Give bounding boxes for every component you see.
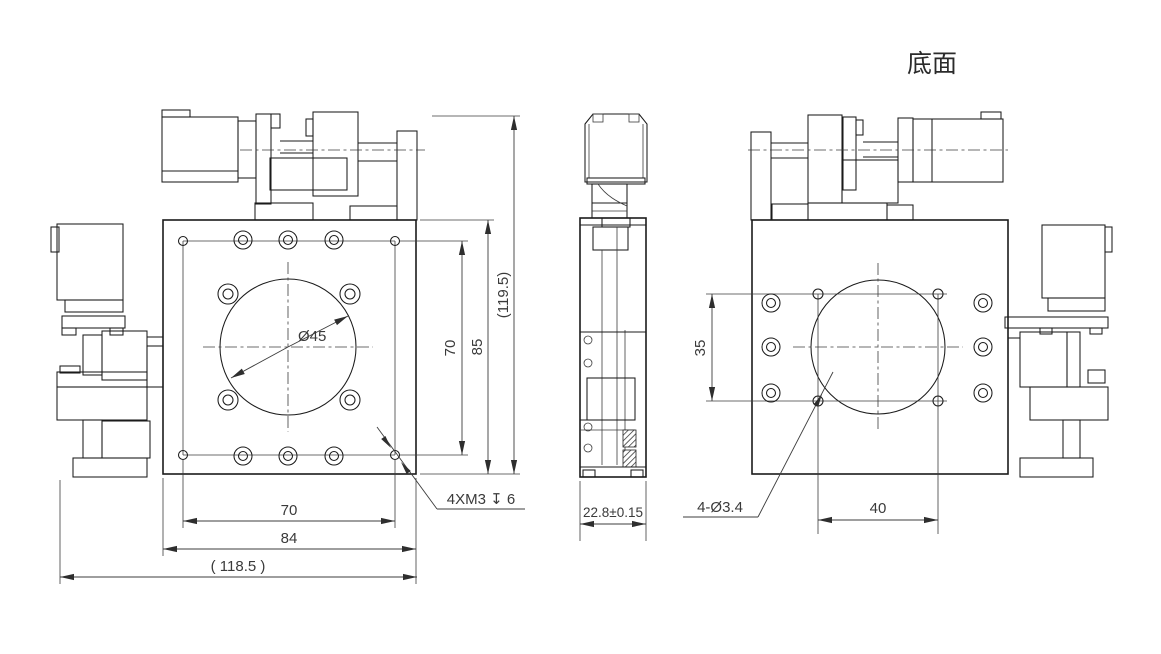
front-plate-screw-holes: [218, 231, 360, 465]
front-thread-callout: 4XM3 ↧ 6: [447, 491, 515, 508]
bottom-plate-outline: [752, 220, 1008, 474]
front-view-left-motor-assembly: [51, 224, 163, 477]
side-view-dimension: 22.8±0.15: [580, 481, 646, 541]
bottom-plate-screw-holes: [762, 294, 992, 402]
bottom-view-title: 底面: [907, 50, 957, 78]
front-view-top-motor-assembly: [162, 110, 425, 220]
dim-overall-height: (119.5): [495, 272, 512, 318]
dim-holes-vertical: 70: [442, 340, 459, 357]
dim-holes-horizontal: 70: [281, 502, 298, 519]
dim-plate-width: 84: [281, 530, 298, 547]
dim-hole-spacing-h: 40: [870, 500, 887, 517]
cad-drawing-canvas: Ø45 4XM3 ↧ 6 70: [0, 0, 1161, 654]
side-view-body: [580, 114, 647, 477]
dim-plate-height: 85: [469, 339, 486, 356]
dim-overall-width: ( 118.5 ): [211, 558, 266, 575]
side-view: 22.8±0.15: [580, 114, 647, 541]
bottom-view-right-motor-assembly: [1005, 225, 1112, 477]
bottom-view: 底面: [683, 50, 1112, 534]
front-view-dimensions: 70 85 (119.5) 70 84 ( 118.5 ): [60, 116, 520, 584]
front-plate-outline: [163, 220, 416, 474]
engineering-drawing-page: Ø45 4XM3 ↧ 6 70: [0, 0, 1161, 654]
front-view-plate: Ø45 4XM3 ↧ 6: [163, 220, 525, 509]
front-diameter-label: Ø45: [298, 328, 326, 345]
bottom-view-plate: 4-Ø3.4: [683, 220, 1008, 534]
dim-thickness: 22.8±0.15: [583, 505, 643, 520]
bottom-view-top-motor-assembly: [748, 112, 1008, 220]
front-thread-leader: 4XM3 ↧ 6: [377, 427, 525, 509]
bottom-hole-callout: 4-Ø3.4: [697, 499, 743, 516]
front-view: Ø45 4XM3 ↧ 6 70: [51, 110, 525, 584]
dim-hole-spacing-v: 35: [692, 340, 709, 357]
bottom-hole-leader: 4-Ø3.4: [683, 372, 833, 517]
